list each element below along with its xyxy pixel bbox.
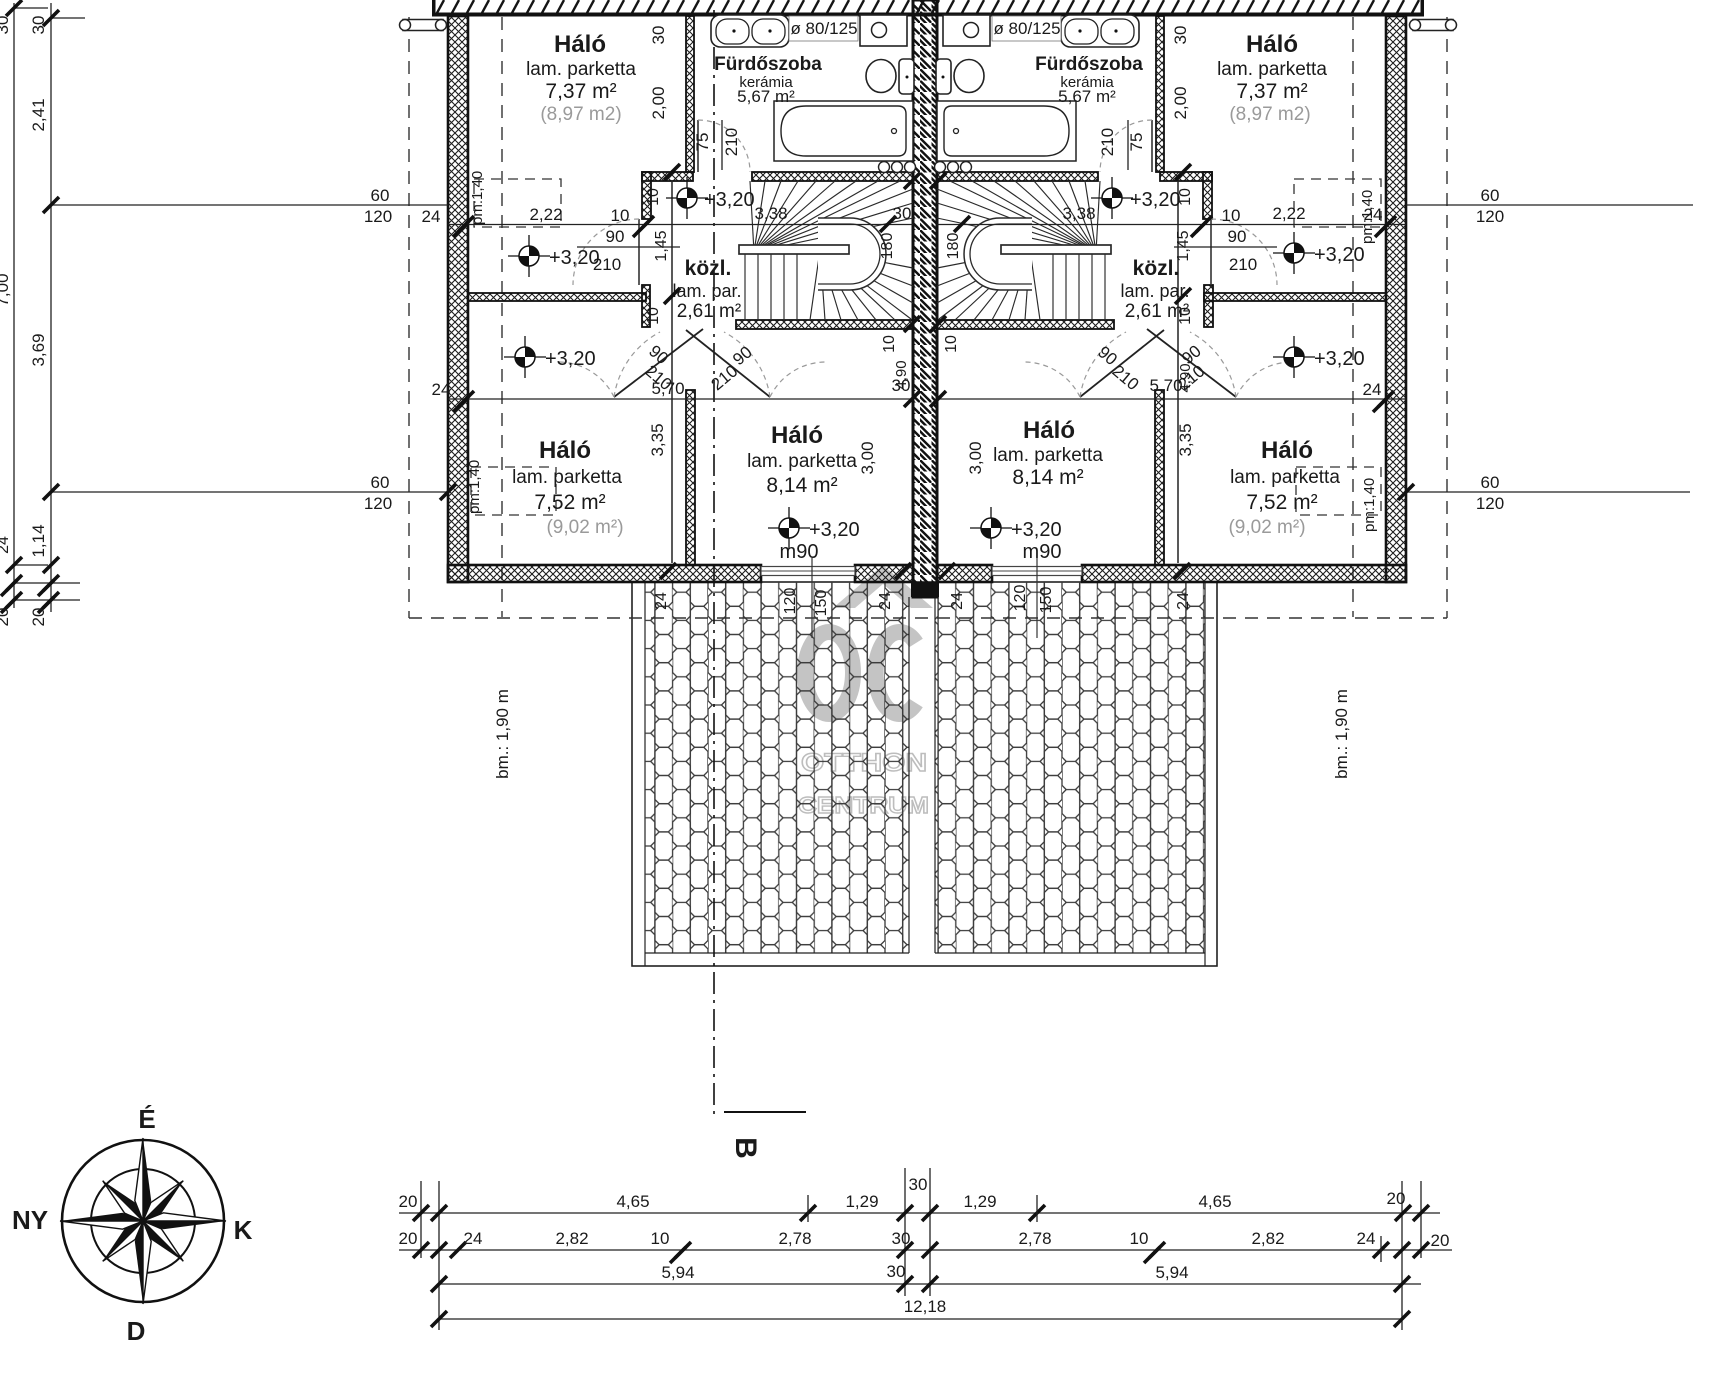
svg-text:3,00: 3,00 [858,441,877,474]
svg-text:30: 30 [29,16,48,35]
svg-text:1,29: 1,29 [845,1192,878,1211]
svg-text:lam. parketta: lam. parketta [993,445,1103,466]
svg-text:24: 24 [0,536,12,554]
svg-text:10: 10 [1177,188,1194,206]
svg-text:Háló: Háló [1246,31,1298,58]
svg-text:24: 24 [1364,205,1383,224]
svg-text:7,52 m²: 7,52 m² [1246,491,1317,514]
svg-text:2,78: 2,78 [1018,1229,1051,1248]
svg-text:24: 24 [422,207,441,226]
svg-text:210: 210 [1229,255,1257,274]
svg-text:lam. par.: lam. par. [672,281,741,301]
svg-text:1,14: 1,14 [29,524,48,557]
svg-text:1,29: 1,29 [963,1192,996,1211]
svg-text:közl.: közl. [685,257,732,280]
svg-text:20: 20 [399,1229,418,1248]
svg-text:m90: m90 [780,541,819,563]
svg-text:Háló: Háló [539,437,591,464]
svg-text:NY: NY [12,1205,48,1235]
svg-text:30: 30 [893,204,912,223]
svg-text:2,82: 2,82 [1251,1229,1284,1248]
svg-text:Fürdőszoba: Fürdőszoba [714,54,822,75]
svg-text:+3,20: +3,20 [809,519,860,541]
svg-text:+3,20: +3,20 [1130,189,1181,211]
svg-text:3,38: 3,38 [754,204,787,223]
svg-text:2,61 m²: 2,61 m² [677,301,741,322]
svg-text:120: 120 [364,494,392,513]
svg-text:2,00: 2,00 [649,86,668,119]
svg-text:20: 20 [1431,1231,1450,1250]
svg-text:60: 60 [1481,186,1500,205]
svg-text:5,67 m²: 5,67 m² [1058,87,1116,106]
svg-text:2,22: 2,22 [529,205,562,224]
svg-text:K: K [234,1215,253,1245]
svg-text:4,90: 4,90 [893,360,910,389]
svg-text:+3,20: +3,20 [704,189,755,211]
svg-text:közl.: közl. [1133,257,1180,280]
svg-text:3,38: 3,38 [1062,204,1095,223]
svg-text:5,67 m²: 5,67 m² [737,87,795,106]
svg-text:120: 120 [782,588,799,615]
svg-text:30: 30 [887,1262,906,1281]
svg-text:2,00: 2,00 [1171,86,1190,119]
svg-text:3,35: 3,35 [648,423,667,456]
svg-text:4,65: 4,65 [616,1192,649,1211]
svg-text:(9,02 m²): (9,02 m²) [1228,517,1305,538]
svg-text:7,52 m²: 7,52 m² [534,491,605,514]
svg-text:5,94: 5,94 [661,1263,694,1282]
svg-text:8,14 m²: 8,14 m² [1012,466,1083,489]
svg-text:24: 24 [949,592,966,610]
svg-text:210: 210 [722,128,741,156]
svg-text:30: 30 [892,1229,911,1248]
svg-text:75: 75 [693,133,712,152]
svg-text:(8,97 m2): (8,97 m2) [1229,104,1310,125]
svg-text:lam. parketta: lam. parketta [526,59,636,80]
svg-text:2,82: 2,82 [555,1229,588,1248]
svg-text:2,41: 2,41 [29,98,48,131]
svg-text:10: 10 [651,1229,670,1248]
svg-text:D: D [127,1316,146,1346]
svg-text:24: 24 [877,592,894,610]
svg-text:+3,20: +3,20 [1314,348,1365,370]
svg-text:90: 90 [606,227,625,246]
svg-text:75: 75 [1127,133,1146,152]
svg-text:Háló: Háló [554,31,606,58]
svg-text:24: 24 [1175,592,1192,610]
svg-text:10: 10 [1222,206,1241,225]
svg-text:pm:1,40: pm:1,40 [466,460,483,514]
svg-text:bm.: 1,90 m: bm.: 1,90 m [493,689,512,779]
svg-text:+3,20: +3,20 [545,348,596,370]
svg-text:10: 10 [611,206,630,225]
svg-text:pm:1,40: pm:1,40 [1361,478,1378,532]
svg-text:60: 60 [371,473,390,492]
svg-text:120: 120 [1012,585,1029,612]
svg-text:150: 150 [813,590,830,617]
svg-text:30: 30 [0,16,12,35]
svg-text:10: 10 [1177,307,1194,325]
svg-text:30: 30 [909,1175,928,1194]
svg-text:7,37 m²: 7,37 m² [1236,80,1307,103]
svg-text:3,00: 3,00 [966,441,985,474]
svg-text:7,00: 7,00 [0,273,12,306]
svg-text:B: B [729,1137,762,1159]
svg-text:180: 180 [879,233,896,260]
svg-text:20: 20 [0,608,12,627]
svg-text:bm.: 1,90 m: bm.: 1,90 m [1332,689,1351,779]
svg-text:ø 80/125: ø 80/125 [790,19,857,38]
svg-text:30: 30 [1171,26,1190,45]
svg-text:É: É [138,1104,155,1134]
svg-text:4,65: 4,65 [1198,1192,1231,1211]
svg-text:+3,20: +3,20 [1011,519,1062,541]
svg-text:+3,20: +3,20 [1314,244,1365,266]
svg-text:5,94: 5,94 [1155,1263,1188,1282]
svg-text:24: 24 [464,1229,483,1248]
svg-text:90: 90 [1228,227,1247,246]
svg-text:1,45: 1,45 [653,230,670,261]
svg-text:20: 20 [1387,1189,1406,1208]
svg-text:60: 60 [371,186,390,205]
svg-text:7,37 m²: 7,37 m² [545,80,616,103]
svg-text:Háló: Háló [1261,437,1313,464]
svg-text:10: 10 [645,307,662,325]
svg-text:24: 24 [653,592,670,610]
svg-text:30: 30 [649,26,668,45]
svg-text:10: 10 [943,335,960,353]
svg-text:2,78: 2,78 [778,1229,811,1248]
svg-text:120: 120 [364,207,392,226]
svg-text:60: 60 [1481,473,1500,492]
svg-text:20: 20 [399,1192,418,1211]
svg-text:3,35: 3,35 [1176,423,1195,456]
svg-text:10: 10 [881,335,898,353]
svg-text:m90: m90 [1023,541,1062,563]
svg-text:Fürdőszoba: Fürdőszoba [1035,54,1143,75]
svg-text:10: 10 [645,188,662,206]
svg-text:180: 180 [945,233,962,260]
svg-text:3,69: 3,69 [29,333,48,366]
svg-text:120: 120 [1476,494,1504,513]
svg-text:210: 210 [593,255,621,274]
svg-text:(8,97 m2): (8,97 m2) [540,104,621,125]
svg-text:10: 10 [1130,1229,1149,1248]
svg-text:24: 24 [1357,1229,1376,1248]
svg-text:12,18: 12,18 [904,1297,947,1316]
svg-text:8,14 m²: 8,14 m² [766,474,837,497]
svg-text:24: 24 [1363,380,1382,399]
svg-text:120: 120 [1476,207,1504,226]
svg-text:Háló: Háló [1023,417,1075,444]
svg-text:(9,02 m²): (9,02 m²) [546,517,623,538]
svg-text:Háló: Háló [771,422,823,449]
svg-text:lam. parketta: lam. parketta [1217,59,1327,80]
svg-text:lam. parketta: lam. parketta [1230,467,1340,488]
svg-text:20: 20 [29,608,48,627]
svg-text:1,45: 1,45 [1175,230,1192,261]
svg-text:lam. parketta: lam. parketta [512,467,622,488]
svg-text:ø 80/125: ø 80/125 [993,19,1060,38]
svg-text:lam. parketta: lam. parketta [747,451,857,472]
svg-text:24: 24 [432,380,451,399]
svg-text:150: 150 [1038,587,1055,614]
svg-text:2,22: 2,22 [1272,204,1305,223]
svg-text:210: 210 [1098,128,1117,156]
